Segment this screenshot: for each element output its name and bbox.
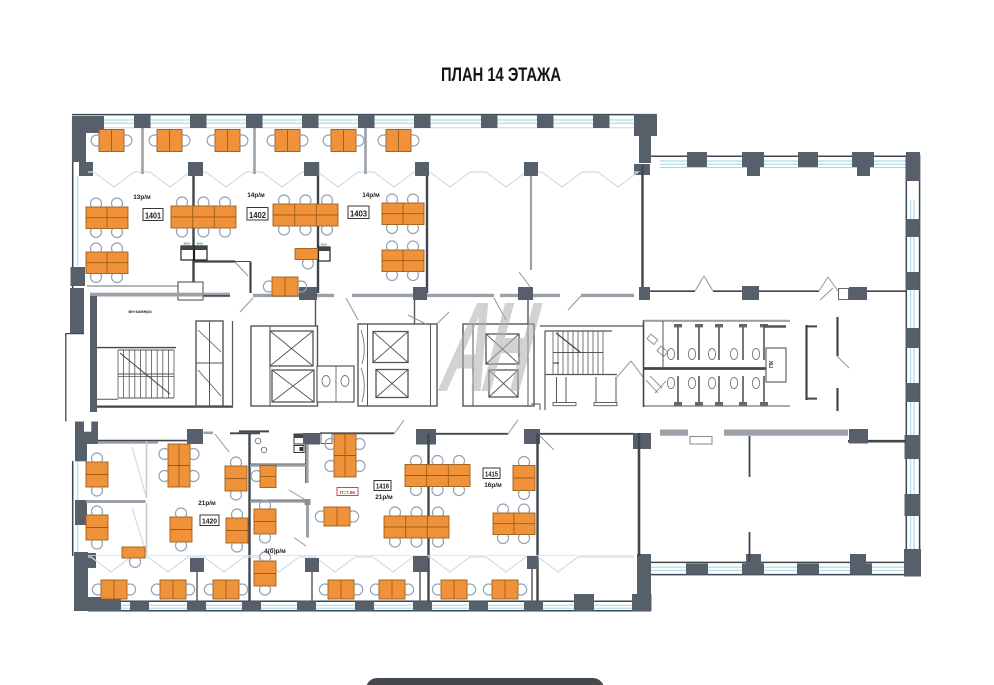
svg-text:1403: 1403 [350, 209, 368, 218]
svg-text:1420: 1420 [202, 518, 217, 525]
svg-text:МФУ: МФУ [321, 243, 328, 247]
svg-text:вн-камера: вн-камера [128, 309, 152, 314]
svg-text:13р/м: 13р/м [133, 194, 151, 201]
svg-text:16р/м: 16р/м [484, 482, 502, 489]
svg-text:1401: 1401 [145, 211, 161, 220]
svg-text:1416: 1416 [376, 483, 389, 490]
svg-text:1402: 1402 [249, 211, 267, 220]
svg-text:21р/м: 21р/м [375, 494, 393, 501]
svg-text:ПЛАН 14 ЭТАЖА: ПЛАН 14 ЭТАЖА [441, 65, 561, 86]
svg-text:14р/м: 14р/м [247, 192, 265, 199]
svg-text:4(б)р/м: 4(б)р/м [264, 548, 286, 555]
svg-text:ПК: ПК [769, 360, 775, 368]
svg-text:П=7.66: П=7.66 [340, 490, 355, 495]
svg-text:21р/м: 21р/м [198, 500, 216, 507]
svg-text:МФУ: МФУ [197, 242, 204, 246]
svg-text:1415: 1415 [485, 471, 498, 478]
svg-text:14р/м: 14р/м [362, 192, 380, 199]
svg-text:МФУ: МФУ [184, 242, 191, 246]
